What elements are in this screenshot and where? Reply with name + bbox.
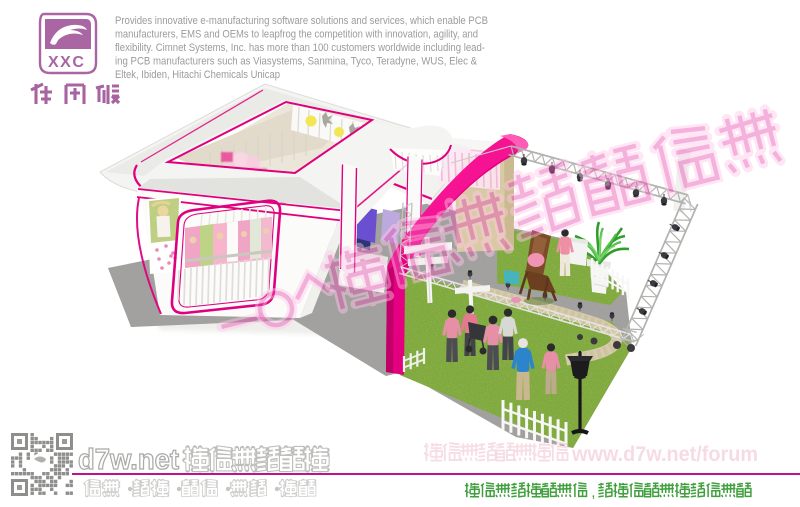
svg-text:d7w.net: d7w.net — [78, 444, 179, 476]
svg-text:XXC: XXC — [48, 54, 85, 71]
svg-text:Eltek, Ibiden, Hitachi Chemica: Eltek, Ibiden, Hitachi Chemicals Unicap — [115, 69, 280, 81]
svg-text:flexibility. Cimnet Systems, I: flexibility. Cimnet Systems, Inc. has mo… — [115, 42, 485, 54]
svg-text:ing PCB manufacturers such as: ing PCB manufacturers such as Viasystems… — [115, 56, 477, 68]
svg-text:www.d7w.net/forum: www.d7w.net/forum — [571, 443, 758, 466]
svg-text:,: , — [591, 484, 595, 501]
svg-text:Provides innovative e-manufact: Provides innovative e-manufacturing soft… — [115, 15, 488, 27]
svg-text:manufacturers, EMS and OEMs to: manufacturers, EMS and OEMs to leapfrog … — [115, 29, 478, 41]
